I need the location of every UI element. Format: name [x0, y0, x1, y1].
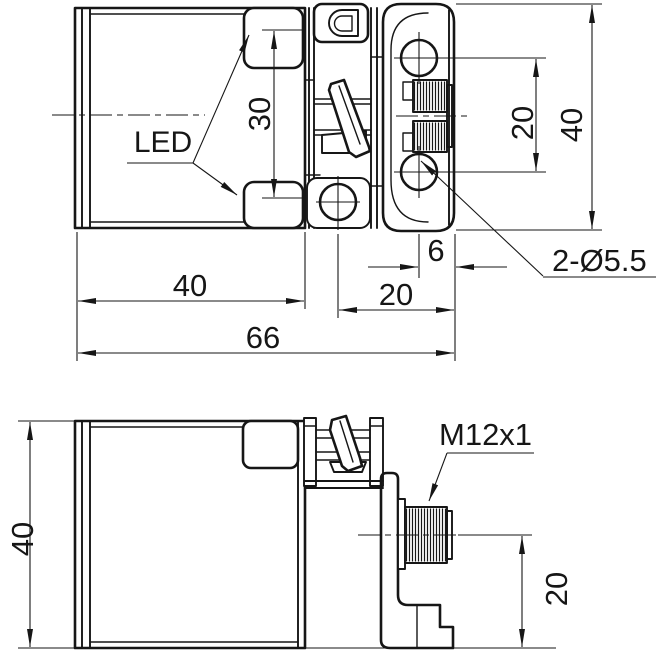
sensor-dimensional-drawing: LED 2-Ø5.5 30 20 — [0, 0, 658, 658]
top-view: LED 2-Ø5.5 30 20 — [52, 4, 656, 361]
dimension-hole-spacing: 20 — [440, 58, 546, 172]
dim-hole-spacing-value: 20 — [505, 106, 540, 140]
mounting-clamp-side-view — [304, 416, 383, 488]
mounting-plate-top-view — [383, 4, 468, 231]
connector-step-lower — [403, 133, 413, 151]
hole-diameter-callout: 2-Ø5.5 — [421, 161, 656, 278]
dim-connector-axis-height-value: 20 — [539, 572, 574, 606]
clamp-screw-head — [329, 10, 358, 36]
mounting-clamp-top-view — [305, 4, 383, 230]
dim-clamp-to-edge-value: 20 — [379, 277, 413, 312]
led-label: LED — [134, 126, 192, 159]
dim-led-spacing-value: 30 — [242, 97, 277, 131]
drawing-canvas: LED 2-Ø5.5 30 20 — [0, 0, 658, 658]
connector-thread-callout: M12x1 — [429, 417, 534, 501]
dim-hole-to-edge-value: 6 — [427, 233, 444, 268]
clamp-post-left — [304, 418, 316, 486]
connector-flange — [398, 499, 405, 569]
hole-callout-label: 2-Ø5.5 — [552, 243, 647, 278]
dimension-overall-width: 66 — [78, 320, 454, 355]
dim-body-width-value: 40 — [173, 268, 207, 303]
dimension-connector-axis-height: 20 — [458, 535, 574, 647]
led-window-side — [243, 421, 298, 468]
connector-step-upper — [403, 82, 413, 100]
m12-connector-side-view — [358, 499, 460, 569]
dim-overall-width-value: 66 — [246, 320, 280, 355]
connector-label: M12x1 — [439, 417, 532, 452]
dim-body-height-value: 40 — [5, 522, 40, 556]
dim-plate-height-value: 40 — [554, 108, 589, 142]
sensor-body-side-view — [75, 421, 305, 648]
dimension-body-height: 40 — [5, 421, 80, 647]
side-view: M12x1 40 20 — [5, 416, 574, 648]
